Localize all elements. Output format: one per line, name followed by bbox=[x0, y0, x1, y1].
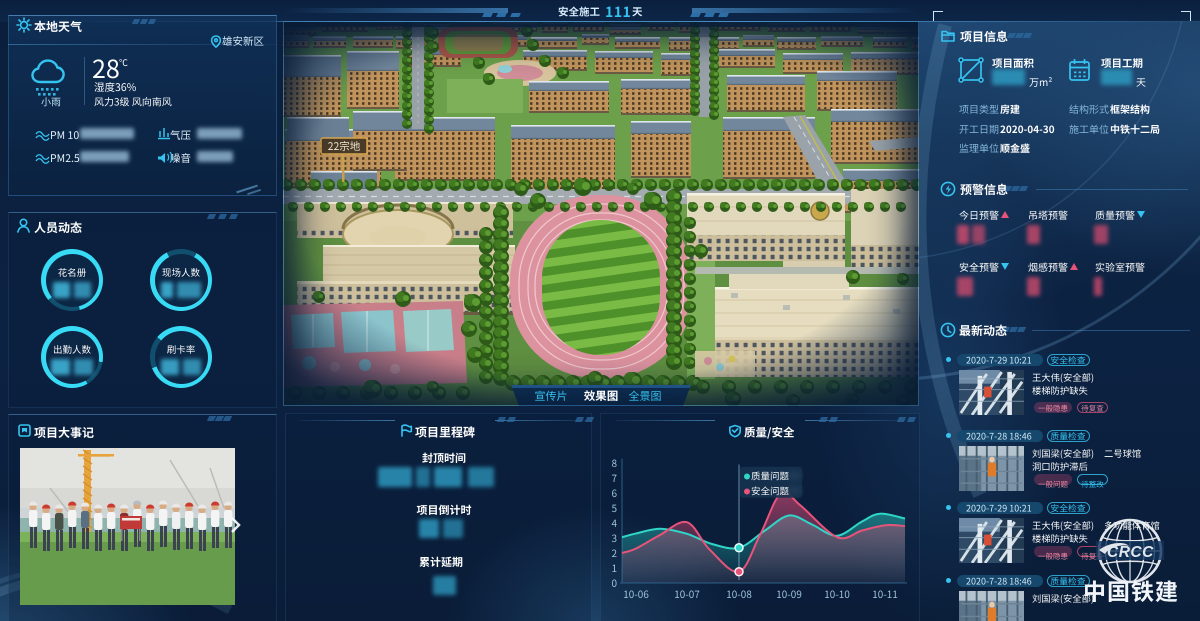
svg-text:CRCC: CRCC bbox=[1107, 544, 1154, 561]
